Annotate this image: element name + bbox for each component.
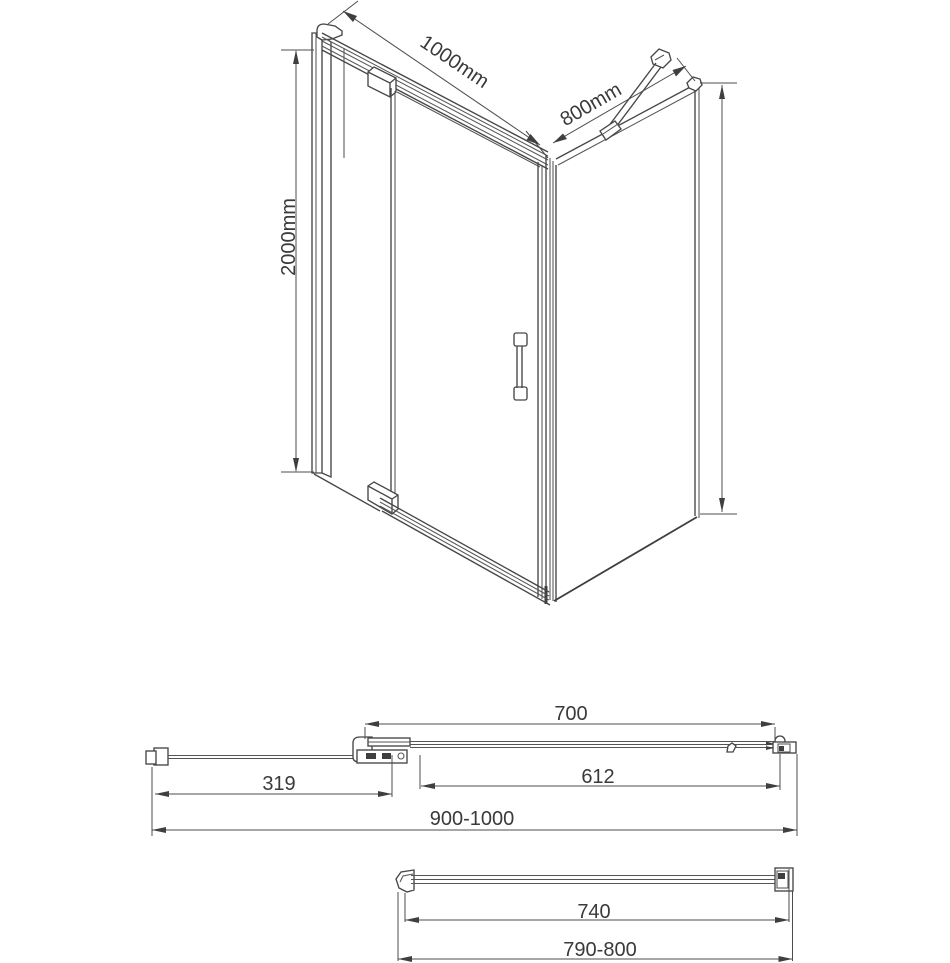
wall-profile-left (312, 24, 344, 477)
plan-view-side-panel: 740 790-800 (396, 868, 793, 962)
side-panel (554, 77, 702, 601)
corner-post (546, 155, 556, 604)
dimension-right-height (700, 83, 737, 514)
dim-label-319: 319 (262, 773, 295, 795)
plan-fixed-glass (168, 756, 356, 759)
dim-label-900-1000: 900-1000 (430, 808, 515, 830)
dim-label-790-800: 790-800 (563, 939, 636, 961)
dim-label-740: 740 (577, 901, 610, 923)
dim-label-700: 700 (554, 703, 587, 725)
bottom-rail (314, 474, 550, 605)
dimension-800mm: 800mm (553, 58, 695, 143)
dimension-740: 740 (405, 891, 789, 923)
plan-wall-profile-left (146, 748, 168, 765)
plan-door-glass (410, 742, 774, 753)
plan-corner-bracket (396, 870, 414, 892)
panel-top-cap (687, 77, 702, 91)
dimension-612: 612 (420, 754, 780, 790)
dim-label-1000mm: 1000mm (416, 31, 493, 93)
dimension-900-1000: 900-1000 (152, 754, 797, 836)
technical-drawing-page: 1000mm 800mm 2000mm (0, 0, 950, 963)
dimension-319: 319 (152, 755, 392, 836)
dim-label-2000mm: 2000mm (278, 198, 300, 276)
door-handle (514, 333, 527, 400)
isometric-view: 1000mm 800mm 2000mm (278, 1, 737, 605)
shower-enclosure-drawing: 1000mm 800mm 2000mm (0, 0, 950, 963)
plan-side-glass (411, 876, 776, 884)
dimension-700: 700 (365, 703, 775, 741)
plan-view-door-wall: 700 612 319 900-1000 (146, 703, 797, 836)
dim-label-612: 612 (581, 766, 614, 788)
plan-wall-bracket-right (773, 736, 796, 753)
plan-hinge-assembly (353, 737, 410, 763)
top-hinge (368, 67, 396, 97)
hinge-edge (391, 88, 395, 500)
dimension-2000mm: 2000mm (278, 50, 314, 472)
plan-wall-profile-right (775, 868, 793, 891)
